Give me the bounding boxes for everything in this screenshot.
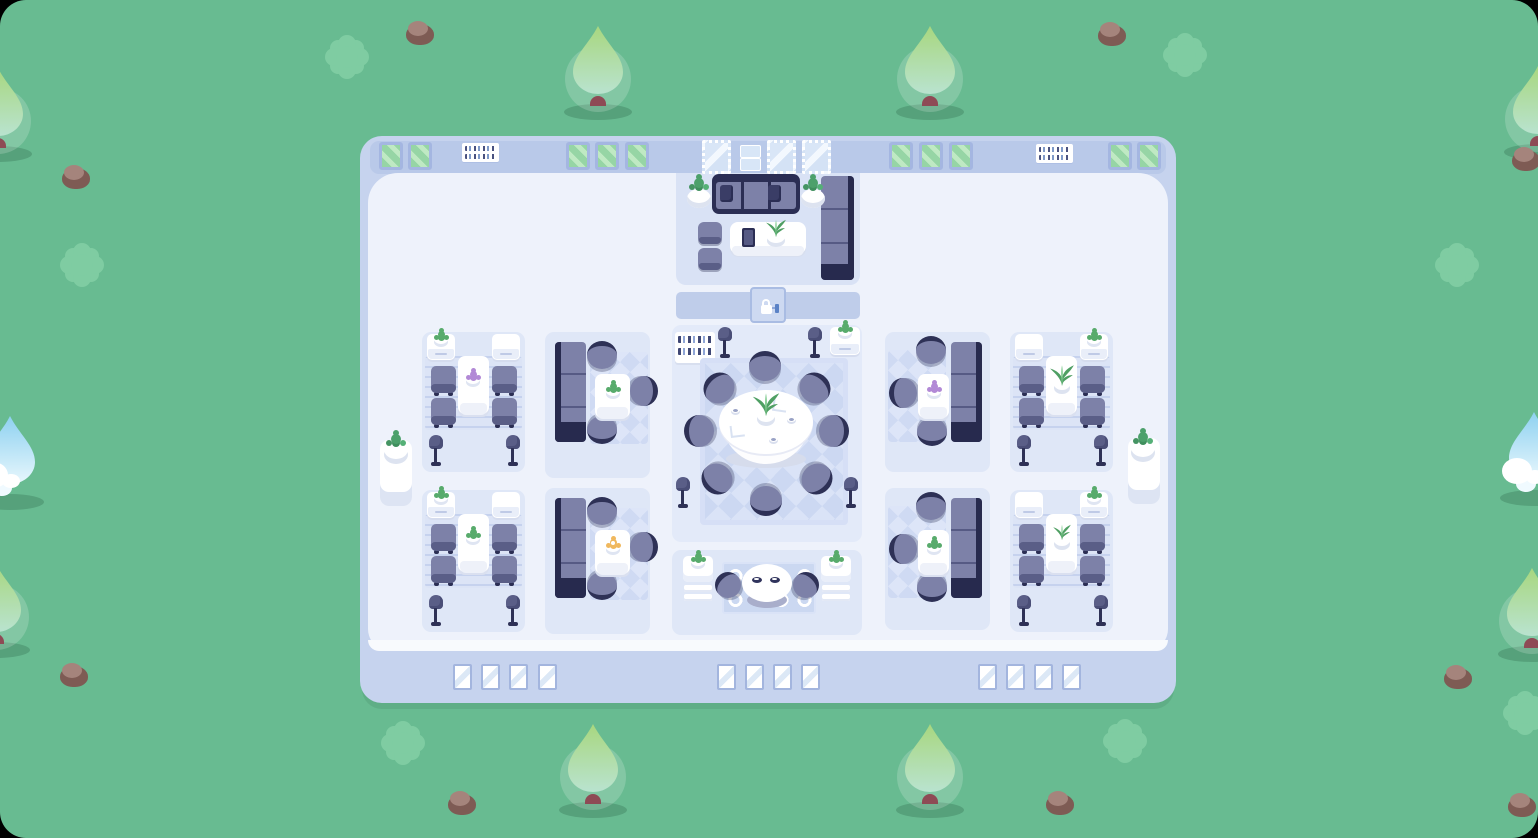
shrub-pot[interactable]	[686, 176, 712, 208]
dining-table[interactable]	[458, 356, 489, 414]
coffee-cup[interactable]	[731, 408, 740, 415]
tree	[0, 548, 36, 663]
floor-lamp[interactable]	[718, 327, 732, 358]
flower-vase	[925, 382, 943, 399]
stool[interactable]	[917, 418, 947, 446]
sofa[interactable]	[712, 174, 800, 214]
agave-plant-icon	[1049, 364, 1075, 386]
dining-chair[interactable]	[431, 524, 456, 551]
white-window	[538, 664, 557, 690]
ottoman[interactable]	[698, 248, 722, 270]
white-window	[1062, 664, 1081, 690]
cabinet[interactable]	[492, 492, 520, 518]
rock	[1046, 794, 1074, 815]
bush	[1100, 716, 1150, 766]
bush	[57, 240, 107, 290]
floor-lamp[interactable]	[1094, 435, 1108, 466]
white-window	[773, 664, 792, 690]
dining-chair[interactable]	[1080, 366, 1105, 393]
side-table[interactable]	[595, 374, 630, 418]
potted-plant[interactable]	[432, 488, 450, 505]
dining-chair[interactable]	[431, 398, 456, 425]
door-handle-icon	[775, 304, 779, 313]
tree	[890, 10, 970, 125]
bush	[322, 32, 372, 82]
room-booth-top-right	[885, 332, 990, 472]
potted-plant	[604, 382, 622, 399]
bush	[1160, 30, 1210, 80]
floor-lamp[interactable]	[429, 595, 443, 626]
place-setting	[752, 577, 762, 583]
dining-chair[interactable]	[431, 556, 456, 583]
floor-lamp[interactable]	[844, 477, 858, 508]
stool[interactable]	[916, 492, 946, 520]
stool[interactable]	[917, 574, 947, 602]
stool[interactable]	[630, 376, 658, 406]
dining-chair[interactable]	[1019, 556, 1044, 583]
potted-plant[interactable]	[1085, 330, 1103, 347]
potted-plant	[464, 528, 482, 545]
screenshot-stage	[0, 0, 1538, 838]
white-window	[801, 664, 820, 690]
rock	[1512, 150, 1538, 171]
white-window	[453, 664, 472, 690]
side-table[interactable]	[595, 530, 630, 574]
rock	[448, 794, 476, 815]
tree	[0, 52, 38, 167]
rock	[406, 24, 434, 45]
conference-table[interactable]	[719, 390, 813, 472]
tree	[890, 708, 970, 823]
tree	[558, 10, 638, 125]
office-building	[360, 136, 1176, 703]
conference-chair[interactable]	[684, 415, 714, 447]
stool[interactable]	[587, 416, 617, 444]
rock	[1444, 668, 1472, 689]
potted-plant-icon	[765, 219, 787, 237]
dresser[interactable]	[821, 556, 851, 600]
room-booth-top-left	[545, 332, 650, 478]
cafe-table[interactable]	[742, 564, 792, 610]
vanity-mirror	[702, 140, 731, 174]
dining-table[interactable]	[1046, 356, 1077, 414]
vanity-mirror	[802, 140, 831, 174]
stool[interactable]	[587, 572, 617, 600]
dining-chair[interactable]	[1019, 398, 1044, 425]
bush	[1432, 240, 1482, 290]
vanity-mirror	[767, 140, 796, 174]
dining-chair[interactable]	[1019, 366, 1044, 393]
white-window	[1034, 664, 1053, 690]
room-dining-bottom-right	[1010, 490, 1113, 632]
stool[interactable]	[889, 534, 917, 564]
dining-chair[interactable]	[492, 524, 517, 551]
shrub-pot[interactable]	[383, 432, 409, 464]
room-cafe	[672, 550, 862, 635]
stool[interactable]	[587, 497, 617, 525]
side-table[interactable]	[918, 374, 949, 418]
door[interactable]	[750, 287, 786, 323]
dining-chair[interactable]	[492, 366, 517, 393]
conference-chair[interactable]	[749, 351, 781, 381]
coffee-table[interactable]	[730, 222, 806, 254]
bush	[1500, 688, 1538, 738]
small-shelf	[740, 158, 761, 171]
cloud-tree	[0, 400, 50, 515]
centerpiece-plant-icon	[751, 392, 781, 416]
green-window	[949, 142, 973, 170]
cabinet[interactable]	[1015, 334, 1043, 360]
throw-pillow	[720, 185, 733, 202]
potted-plant	[827, 552, 845, 569]
coffee-cup[interactable]	[787, 417, 796, 424]
dining-chair[interactable]	[1080, 524, 1105, 551]
conference-chair[interactable]	[819, 415, 849, 447]
dining-chair[interactable]	[431, 366, 456, 393]
lock-icon	[761, 305, 772, 314]
floor-lamp[interactable]	[506, 595, 520, 626]
stool[interactable]	[916, 336, 946, 364]
grass-field	[0, 0, 1538, 838]
room-dining-top-right	[1010, 332, 1113, 472]
dining-chair[interactable]	[492, 398, 517, 425]
bookcase[interactable]	[951, 342, 982, 442]
tree	[553, 708, 633, 823]
rock	[62, 168, 90, 189]
white-window	[745, 664, 764, 690]
dining-table[interactable]	[1046, 514, 1077, 572]
floor-lamp[interactable]	[506, 435, 520, 466]
room-booth-bottom-right	[885, 488, 990, 630]
rock	[1098, 25, 1126, 46]
small-shelf	[740, 145, 761, 158]
dining-table[interactable]	[458, 514, 489, 572]
dining-chair[interactable]	[1080, 556, 1105, 583]
cabinet[interactable]	[492, 334, 520, 360]
green-window	[1108, 142, 1132, 170]
room-booth-bottom-left	[545, 488, 650, 634]
throw-pillow	[768, 185, 781, 202]
ottoman[interactable]	[698, 222, 722, 244]
cabinet[interactable]	[1015, 492, 1043, 518]
floor-lamp[interactable]	[1094, 595, 1108, 626]
dining-chair[interactable]	[492, 556, 517, 583]
dresser[interactable]	[683, 556, 713, 600]
potted-plant[interactable]	[432, 330, 450, 347]
wall-shelf	[462, 143, 499, 162]
coffee-cup[interactable]	[769, 437, 778, 444]
floor-lamp[interactable]	[1017, 435, 1031, 466]
stool[interactable]	[630, 532, 658, 562]
green-window	[595, 142, 619, 170]
dining-chair[interactable]	[1019, 524, 1044, 551]
papers[interactable]	[731, 422, 746, 436]
bush	[378, 718, 428, 768]
green-window	[566, 142, 590, 170]
green-window	[408, 142, 432, 170]
white-window	[717, 664, 736, 690]
floor-lamp[interactable]	[1017, 595, 1031, 626]
side-table[interactable]	[918, 530, 949, 574]
bookcase[interactable]	[951, 498, 982, 598]
potted-plant[interactable]	[836, 322, 854, 339]
flower-center	[611, 541, 615, 545]
green-window	[1137, 142, 1161, 170]
shrub-pot[interactable]	[800, 176, 826, 208]
conference-chair[interactable]	[750, 486, 782, 516]
sprout-plant-icon	[1052, 524, 1072, 540]
wall-shelf	[1036, 144, 1073, 163]
dining-chair[interactable]	[1080, 398, 1105, 425]
potted-plant	[689, 552, 707, 569]
potted-plant[interactable]	[1085, 488, 1103, 505]
green-window	[379, 142, 403, 170]
floor-lamp[interactable]	[808, 327, 822, 358]
room-dining-bottom-left	[422, 490, 525, 632]
green-window	[889, 142, 913, 170]
floor-lamp[interactable]	[676, 477, 690, 508]
white-window	[481, 664, 500, 690]
stool[interactable]	[889, 378, 917, 408]
cloud-tree	[1494, 396, 1538, 511]
bookcase[interactable]	[555, 498, 586, 598]
rock	[60, 666, 88, 687]
white-window	[978, 664, 997, 690]
white-window	[509, 664, 528, 690]
room-meeting	[672, 325, 862, 542]
bookcase[interactable]	[555, 342, 586, 442]
tree	[1492, 552, 1538, 667]
potted-plant	[925, 538, 943, 555]
flower-vase	[464, 370, 482, 387]
green-window	[625, 142, 649, 170]
white-window	[1006, 664, 1025, 690]
floor-lamp[interactable]	[429, 435, 443, 466]
place-setting	[770, 577, 780, 583]
room-dining-top-left	[422, 332, 525, 472]
shrub-pot[interactable]	[1130, 430, 1156, 462]
rock	[1508, 796, 1536, 817]
stool[interactable]	[587, 341, 617, 369]
green-window	[919, 142, 943, 170]
tablet[interactable]	[742, 228, 755, 247]
